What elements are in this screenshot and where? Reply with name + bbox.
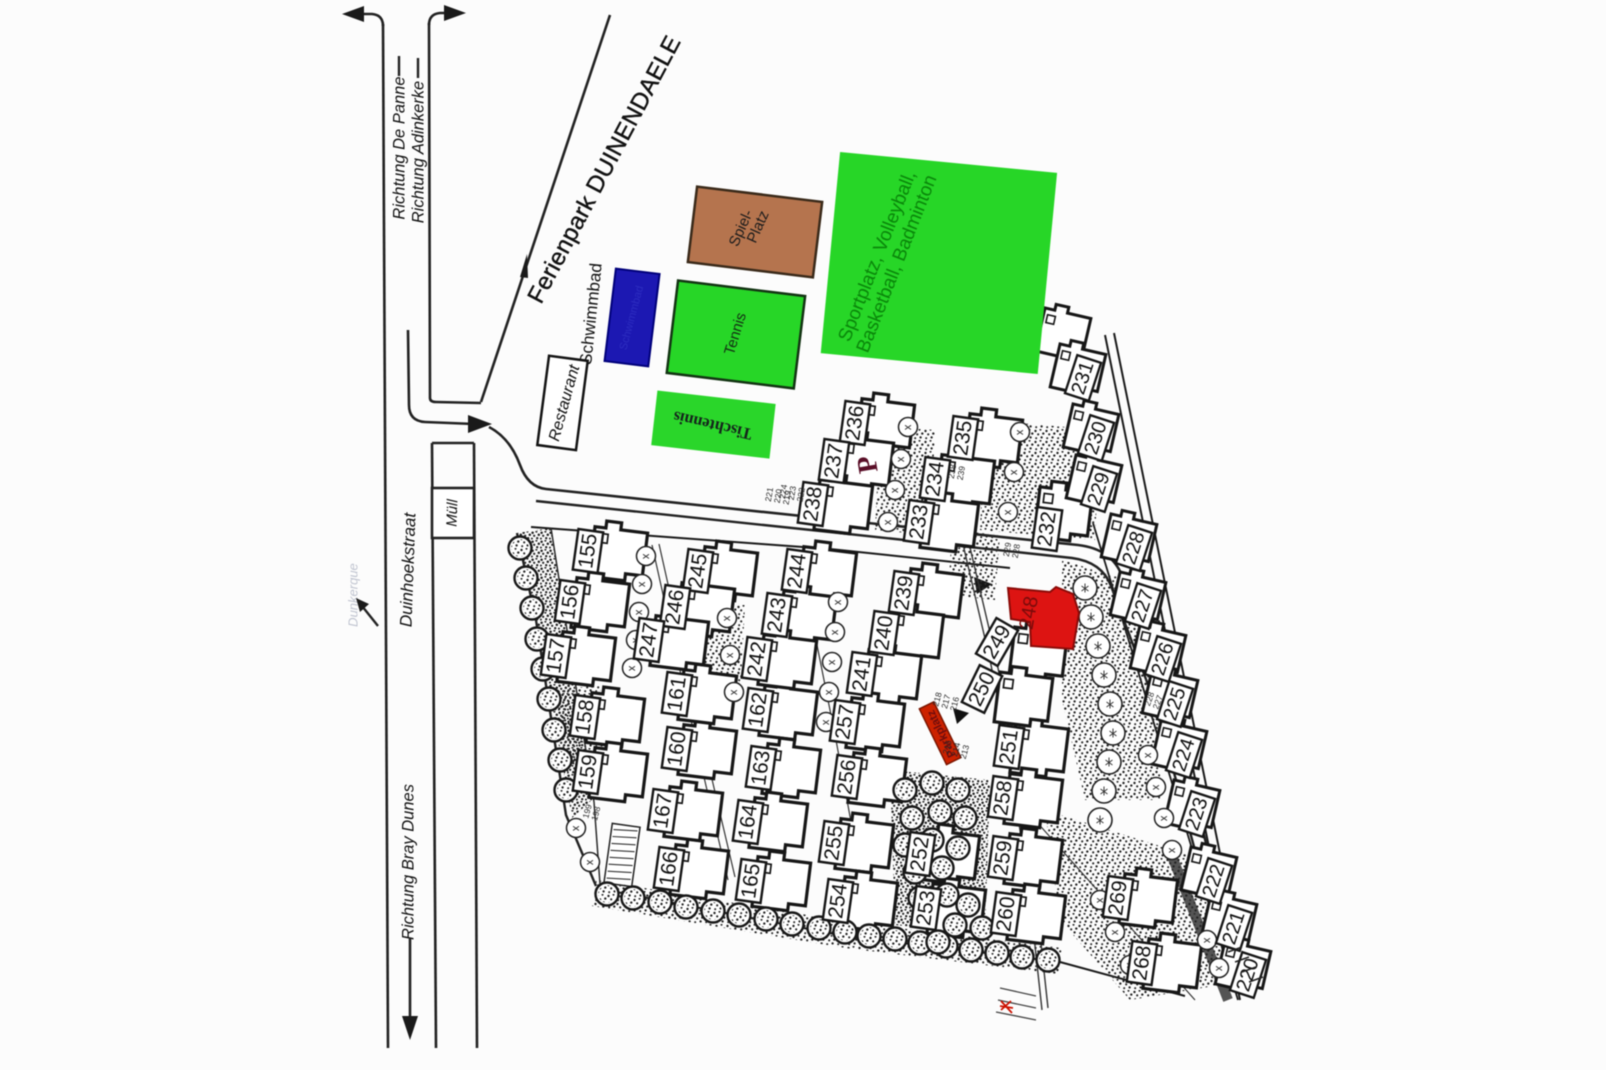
svg-text:245: 245 xyxy=(684,552,712,590)
svg-text:233: 233 xyxy=(905,503,933,541)
svg-text:240: 240 xyxy=(870,614,898,652)
svg-text:241: 241 xyxy=(848,655,876,693)
svg-text:235: 235 xyxy=(949,419,977,457)
svg-text:156: 156 xyxy=(556,583,584,621)
svg-text:258: 258 xyxy=(989,779,1017,817)
svg-text:163: 163 xyxy=(747,749,775,787)
svg-text:158: 158 xyxy=(571,698,599,736)
svg-text:167: 167 xyxy=(649,792,677,830)
svg-text:166: 166 xyxy=(655,850,683,888)
svg-text:251: 251 xyxy=(995,728,1023,766)
svg-text:247: 247 xyxy=(635,621,663,659)
svg-text:162: 162 xyxy=(744,691,772,729)
svg-text:253: 253 xyxy=(912,889,940,927)
svg-text:165: 165 xyxy=(737,862,765,900)
svg-text:Dunkerque: Dunkerque xyxy=(345,563,360,627)
svg-text:257: 257 xyxy=(831,703,859,741)
svg-text:243: 243 xyxy=(763,596,791,634)
svg-text:236: 236 xyxy=(841,404,869,442)
svg-text:260: 260 xyxy=(992,895,1020,933)
svg-text:Richtung De Panne: Richtung De Panne xyxy=(390,76,408,219)
svg-text:269: 269 xyxy=(1104,879,1132,917)
svg-text:Richtung Adinkerke: Richtung Adinkerke xyxy=(409,81,427,223)
svg-text:232: 232 xyxy=(1033,510,1061,548)
svg-text:237: 237 xyxy=(820,442,848,480)
svg-text:160: 160 xyxy=(663,730,691,768)
svg-text:268: 268 xyxy=(1128,944,1156,982)
svg-text:Müll: Müll xyxy=(443,498,461,527)
svg-text:244: 244 xyxy=(783,552,811,590)
svg-text:159: 159 xyxy=(574,753,602,791)
svg-text:161: 161 xyxy=(663,675,691,713)
svg-text:255: 255 xyxy=(820,824,848,862)
svg-text:246: 246 xyxy=(661,588,689,626)
svg-text:259: 259 xyxy=(989,839,1017,877)
svg-text:239: 239 xyxy=(890,574,918,612)
svg-text:Duinhoekstraat: Duinhoekstraat xyxy=(396,511,419,627)
svg-text:155: 155 xyxy=(574,532,602,570)
svg-text:164: 164 xyxy=(734,803,762,841)
svg-text:234: 234 xyxy=(921,460,949,498)
svg-text:242: 242 xyxy=(743,640,771,678)
svg-text:157: 157 xyxy=(542,637,570,675)
svg-text:254: 254 xyxy=(824,882,852,920)
svg-text:252: 252 xyxy=(906,835,934,873)
svg-text:Richtung Bray Dunes: Richtung Bray Dunes xyxy=(399,784,417,940)
svg-text:256: 256 xyxy=(833,758,861,796)
